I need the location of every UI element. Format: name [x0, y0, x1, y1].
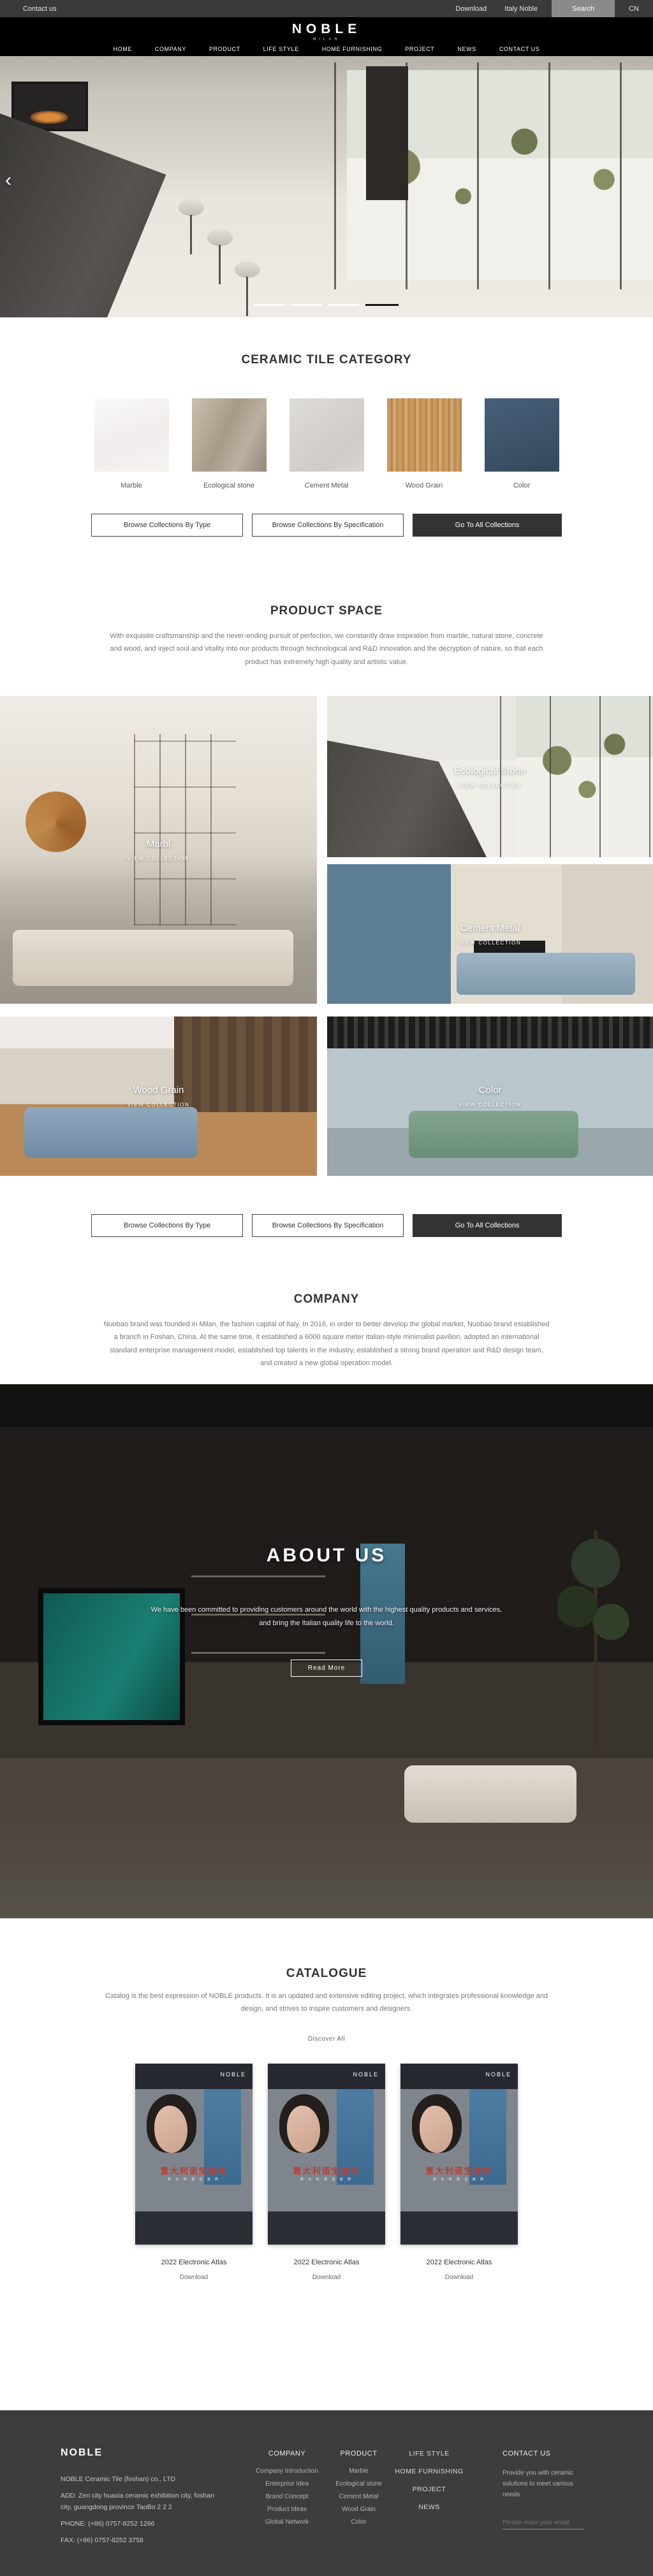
about-read-more-button[interactable]: Read More: [291, 1660, 362, 1677]
footer-link-color[interactable]: Color: [328, 2519, 389, 2526]
download-link[interactable]: Download: [446, 5, 495, 13]
nav-life-style[interactable]: LIFE STYLE: [263, 46, 299, 52]
cover-cn-subtitle: 意 大 利 诺 宝 瓷 砖: [400, 2177, 518, 2182]
space-card-cement-metal[interactable]: Cement Metal VIEW COLLECTION: [327, 864, 653, 1004]
cover-bottom-band: [135, 2211, 253, 2245]
category-title: CERAMIC TILE CATEGORY: [0, 353, 653, 367]
company-title: COMPANY: [0, 1292, 653, 1306]
hero-fire-glow: [31, 111, 68, 124]
cover-cn-subtitle: 意 大 利 诺 宝 瓷 砖: [268, 2177, 385, 2182]
product-space-title: PRODUCT SPACE: [0, 604, 653, 618]
space-card-wood-grain[interactable]: Wood Grain VIEW COLLECTION: [0, 1017, 317, 1176]
catalogue-download-link[interactable]: Download: [135, 2274, 253, 2281]
footer-link-news[interactable]: NEWS: [394, 2503, 464, 2511]
hero-stool: [207, 229, 233, 246]
cover-model-face: [287, 2106, 320, 2153]
footer-contact-text: Provide you with ceramic solutions to me…: [503, 2468, 582, 2500]
catalogue-section: CATALOGUE Catalog is the best expression…: [0, 1918, 653, 2410]
italy-noble-link[interactable]: Italy Noble: [495, 5, 547, 13]
carousel-dash[interactable]: [254, 304, 285, 306]
contact-us-link[interactable]: Contact us: [14, 5, 66, 13]
browse-by-spec-button[interactable]: Browse Collections By Specification: [252, 514, 404, 537]
tile-color[interactable]: Color: [485, 398, 559, 489]
page: Contact us Download Italy Noble Search C…: [0, 0, 653, 2576]
category-section: CERAMIC TILE CATEGORY Marble Ecological …: [0, 317, 653, 554]
catalogue-download-link[interactable]: Download: [268, 2274, 385, 2281]
footer-link-project[interactable]: PROJECT: [394, 2486, 464, 2493]
catalogue-cover[interactable]: NOBLE 意大利诺宝瓷砖 意 大 利 诺 宝 瓷 砖: [135, 2064, 253, 2245]
card-label: Ecological Stone: [455, 765, 526, 776]
footer-product-column: PRODUCT Marble Ecological stone Cement M…: [328, 2450, 389, 2531]
go-all-collections-button[interactable]: Go To All Collections: [413, 514, 562, 537]
company-description: Nuobao brand was founded in Milan, the f…: [103, 1318, 550, 1370]
card-label: Color: [479, 1085, 502, 1096]
hero-stool: [235, 261, 260, 278]
main-nav: HOME COMPANY PRODUCT LIFE STYLE HOME FUR…: [0, 46, 653, 52]
cover-cn-title: 意大利诺宝瓷砖: [135, 2164, 253, 2176]
tile-label: Ecological stone: [192, 482, 267, 489]
site-logo-tagline: MILAN: [0, 38, 653, 41]
carousel-prev-icon[interactable]: ‹: [5, 171, 11, 190]
catalogue-description: Catalog is the best expression of NOBLE …: [103, 1990, 550, 2016]
catalogue-covers: NOBLE 意大利诺宝瓷砖 意 大 利 诺 宝 瓷 砖 2022 Electro…: [135, 2064, 518, 2281]
view-collection-link[interactable]: VIEW COLLECTION: [459, 783, 522, 788]
cover-cn-title: 意大利诺宝瓷砖: [268, 2164, 385, 2176]
browse-by-spec-button[interactable]: Browse Collections By Specification: [252, 1214, 404, 1237]
catalogue-cover[interactable]: NOBLE 意大利诺宝瓷砖 意 大 利 诺 宝 瓷 砖: [400, 2064, 518, 2245]
footer-company-name: NOBLE Ceramic Tile (foshan) co., LTD: [61, 2474, 220, 2485]
about-overlay: ABOUT US We have been committed to provi…: [0, 1384, 653, 1677]
footer-company-info: NOBLE Ceramic Tile (foshan) co., LTD ADD…: [61, 2474, 220, 2552]
carousel-dash-active[interactable]: [365, 304, 399, 306]
collection-buttons: Browse Collections By Type Browse Collec…: [0, 514, 653, 537]
footer-link-home-furnishing[interactable]: HOME FURNISHING: [394, 2468, 464, 2475]
search-button[interactable]: Search: [552, 0, 615, 17]
hero-stool: [179, 199, 204, 216]
catalogue-item-name: 2022 Electronic Atlas: [400, 2259, 518, 2266]
card-label: Cement Metal: [460, 923, 520, 934]
marble-swatch-image: [94, 398, 169, 472]
cover-brand: NOBLE: [220, 2071, 246, 2078]
cover-model-face: [420, 2106, 453, 2153]
footer-link-marble[interactable]: Marble: [328, 2468, 389, 2475]
company-section: COMPANY Nuobao brand was founded in Mila…: [0, 1255, 653, 1384]
category-tiles: Marble Ecological stone Cement Metal Woo…: [0, 398, 653, 489]
discover-all-link[interactable]: Discover All: [0, 2036, 653, 2043]
browse-by-type-button[interactable]: Browse Collections By Type: [91, 1214, 243, 1237]
about-description: We have been committed to providing cust…: [148, 1603, 505, 1630]
cover-bottom-band: [268, 2211, 385, 2245]
carousel-dash[interactable]: [291, 304, 322, 306]
footer-link-wood-grain[interactable]: Wood Grain: [328, 2506, 389, 2513]
catalogue-item: NOBLE 意大利诺宝瓷砖 意 大 利 诺 宝 瓷 砖 2022 Electro…: [268, 2064, 385, 2281]
cover-brand: NOBLE: [485, 2071, 511, 2078]
about-section: ABOUT US We have been committed to provi…: [0, 1384, 653, 1918]
about-sofa: [404, 1765, 576, 1823]
carousel-pagination: [0, 304, 653, 306]
tile-marble[interactable]: Marble: [94, 398, 169, 489]
footer-fax: FAX: (+86) 0757-8252 3758: [61, 2535, 220, 2546]
tile-label: Marble: [94, 482, 169, 489]
language-toggle[interactable]: CN: [615, 5, 653, 13]
cement-metal-swatch-image: [290, 398, 364, 472]
tile-ecological-stone[interactable]: Ecological stone: [192, 398, 267, 489]
carousel-dash[interactable]: [328, 304, 359, 306]
cover-cn-title: 意大利诺宝瓷砖: [400, 2164, 518, 2176]
tile-cement-metal[interactable]: Cement Metal: [290, 398, 364, 489]
space-card-color[interactable]: Color VIEW COLLECTION: [327, 1017, 653, 1176]
footer-link-company-introduction[interactable]: Company Introduction: [249, 2468, 325, 2475]
hero-wardrobe: [366, 66, 408, 200]
space-card-marble[interactable]: Marbl VIEW COLLECTION: [0, 696, 317, 1004]
catalogue-item: NOBLE 意大利诺宝瓷砖 意 大 利 诺 宝 瓷 砖 2022 Electro…: [135, 2064, 253, 2281]
tile-label: Wood Grain: [387, 482, 462, 489]
color-swatch-image: [485, 398, 559, 472]
site-header: NOBLE MILAN HOME COMPANY PRODUCT LIFE ST…: [0, 17, 653, 56]
card-label: Marbl: [147, 839, 171, 850]
about-title: ABOUT US: [0, 1545, 653, 1567]
footer-phone: PHONE: (+86) 0757-8252 1266: [61, 2519, 220, 2529]
footer-contact-column: CONTACT US Provide you with ceramic solu…: [503, 2450, 592, 2529]
view-collection-link[interactable]: VIEW COLLECTION: [459, 1102, 522, 1108]
wood-grain-swatch-image: [387, 398, 462, 472]
nav-news[interactable]: NEWS: [457, 46, 476, 52]
cover-bottom-band: [400, 2211, 518, 2245]
tile-label: Color: [485, 482, 559, 489]
cover-brand: NOBLE: [353, 2071, 379, 2078]
view-collection-link[interactable]: VIEW COLLECTION: [459, 940, 522, 946]
nav-project[interactable]: PROJECT: [405, 46, 434, 52]
collection-buttons: Browse Collections By Type Browse Collec…: [0, 1214, 653, 1237]
catalogue-item: NOBLE 意大利诺宝瓷砖 意 大 利 诺 宝 瓷 砖 2022 Electro…: [400, 2064, 518, 2281]
catalogue-download-link[interactable]: Download: [400, 2274, 518, 2281]
nav-home-furnishing[interactable]: HOME FURNISHING: [322, 46, 383, 52]
catalogue-cover[interactable]: NOBLE 意大利诺宝瓷砖 意 大 利 诺 宝 瓷 砖: [268, 2064, 385, 2245]
catalogue-item-name: 2022 Electronic Atlas: [135, 2259, 253, 2266]
nav-home[interactable]: HOME: [114, 46, 132, 52]
view-collection-link[interactable]: VIEW COLLECTION: [128, 1102, 190, 1108]
footer-address: ADD: Zen city huaxia ceramic exhibition …: [61, 2491, 220, 2513]
catalogue-item-name: 2022 Electronic Atlas: [268, 2259, 385, 2266]
footer-link-enterprise-idea[interactable]: Enterprise Idea: [249, 2480, 325, 2487]
space-card-ecological-stone[interactable]: Ecological Stone VIEW COLLECTION: [327, 696, 653, 857]
footer-link-life-style[interactable]: LIFE STYLE: [394, 2450, 464, 2457]
product-space-description: With exquisite craftsmanship and the nev…: [103, 630, 550, 669]
cover-cn-subtitle: 意 大 利 诺 宝 瓷 砖: [135, 2177, 253, 2182]
footer-company-column: COMPANY Company Introduction Enterprise …: [249, 2450, 325, 2531]
tile-label: Cement Metal: [290, 482, 364, 489]
site-logo[interactable]: NOBLE: [0, 17, 653, 37]
view-collection-link[interactable]: VIEW COLLECTION: [128, 856, 190, 862]
footer-link-cement-metal[interactable]: Cement Metal: [328, 2493, 389, 2500]
nav-company[interactable]: COMPANY: [155, 46, 186, 52]
go-all-collections-button[interactable]: Go To All Collections: [413, 1214, 562, 1237]
product-space-section: PRODUCT SPACE With exquisite craftsmansh…: [0, 554, 653, 1255]
footer-link-global-network[interactable]: Global Network: [249, 2519, 325, 2526]
tile-wood-grain[interactable]: Wood Grain: [387, 398, 462, 489]
footer-column-title: CONTACT US: [503, 2450, 592, 2457]
cover-model-face: [154, 2106, 187, 2153]
footer-column-title[interactable]: PRODUCT: [328, 2450, 389, 2457]
footer-link-product-ideas[interactable]: Product Ideas: [249, 2506, 325, 2513]
ecological-stone-swatch-image: [192, 398, 267, 472]
hero-carousel: ‹: [0, 56, 653, 317]
footer-logo[interactable]: NOBLE: [61, 2447, 103, 2459]
footer-column-title[interactable]: COMPANY: [249, 2450, 325, 2457]
email-input[interactable]: [503, 2517, 584, 2529]
footer-links-column: LIFE STYLE HOME FURNISHING PROJECT NEWS: [394, 2450, 464, 2521]
browse-by-type-button[interactable]: Browse Collections By Type: [91, 514, 243, 537]
card-label: Wood Grain: [133, 1085, 184, 1096]
nav-contact-us[interactable]: CONTACT US: [499, 46, 540, 52]
hero-stone-counter: [0, 113, 268, 317]
footer-link-ecological-stone[interactable]: Ecological stone: [328, 2480, 389, 2487]
top-bar: Contact us Download Italy Noble Search C…: [0, 0, 653, 17]
footer: NOBLE NOBLE Ceramic Tile (foshan) co., L…: [0, 2410, 653, 2576]
nav-product[interactable]: PRODUCT: [209, 46, 240, 52]
footer-link-brand-concept[interactable]: Brand Concept: [249, 2493, 325, 2500]
catalogue-title: CATALOGUE: [0, 1967, 653, 1981]
